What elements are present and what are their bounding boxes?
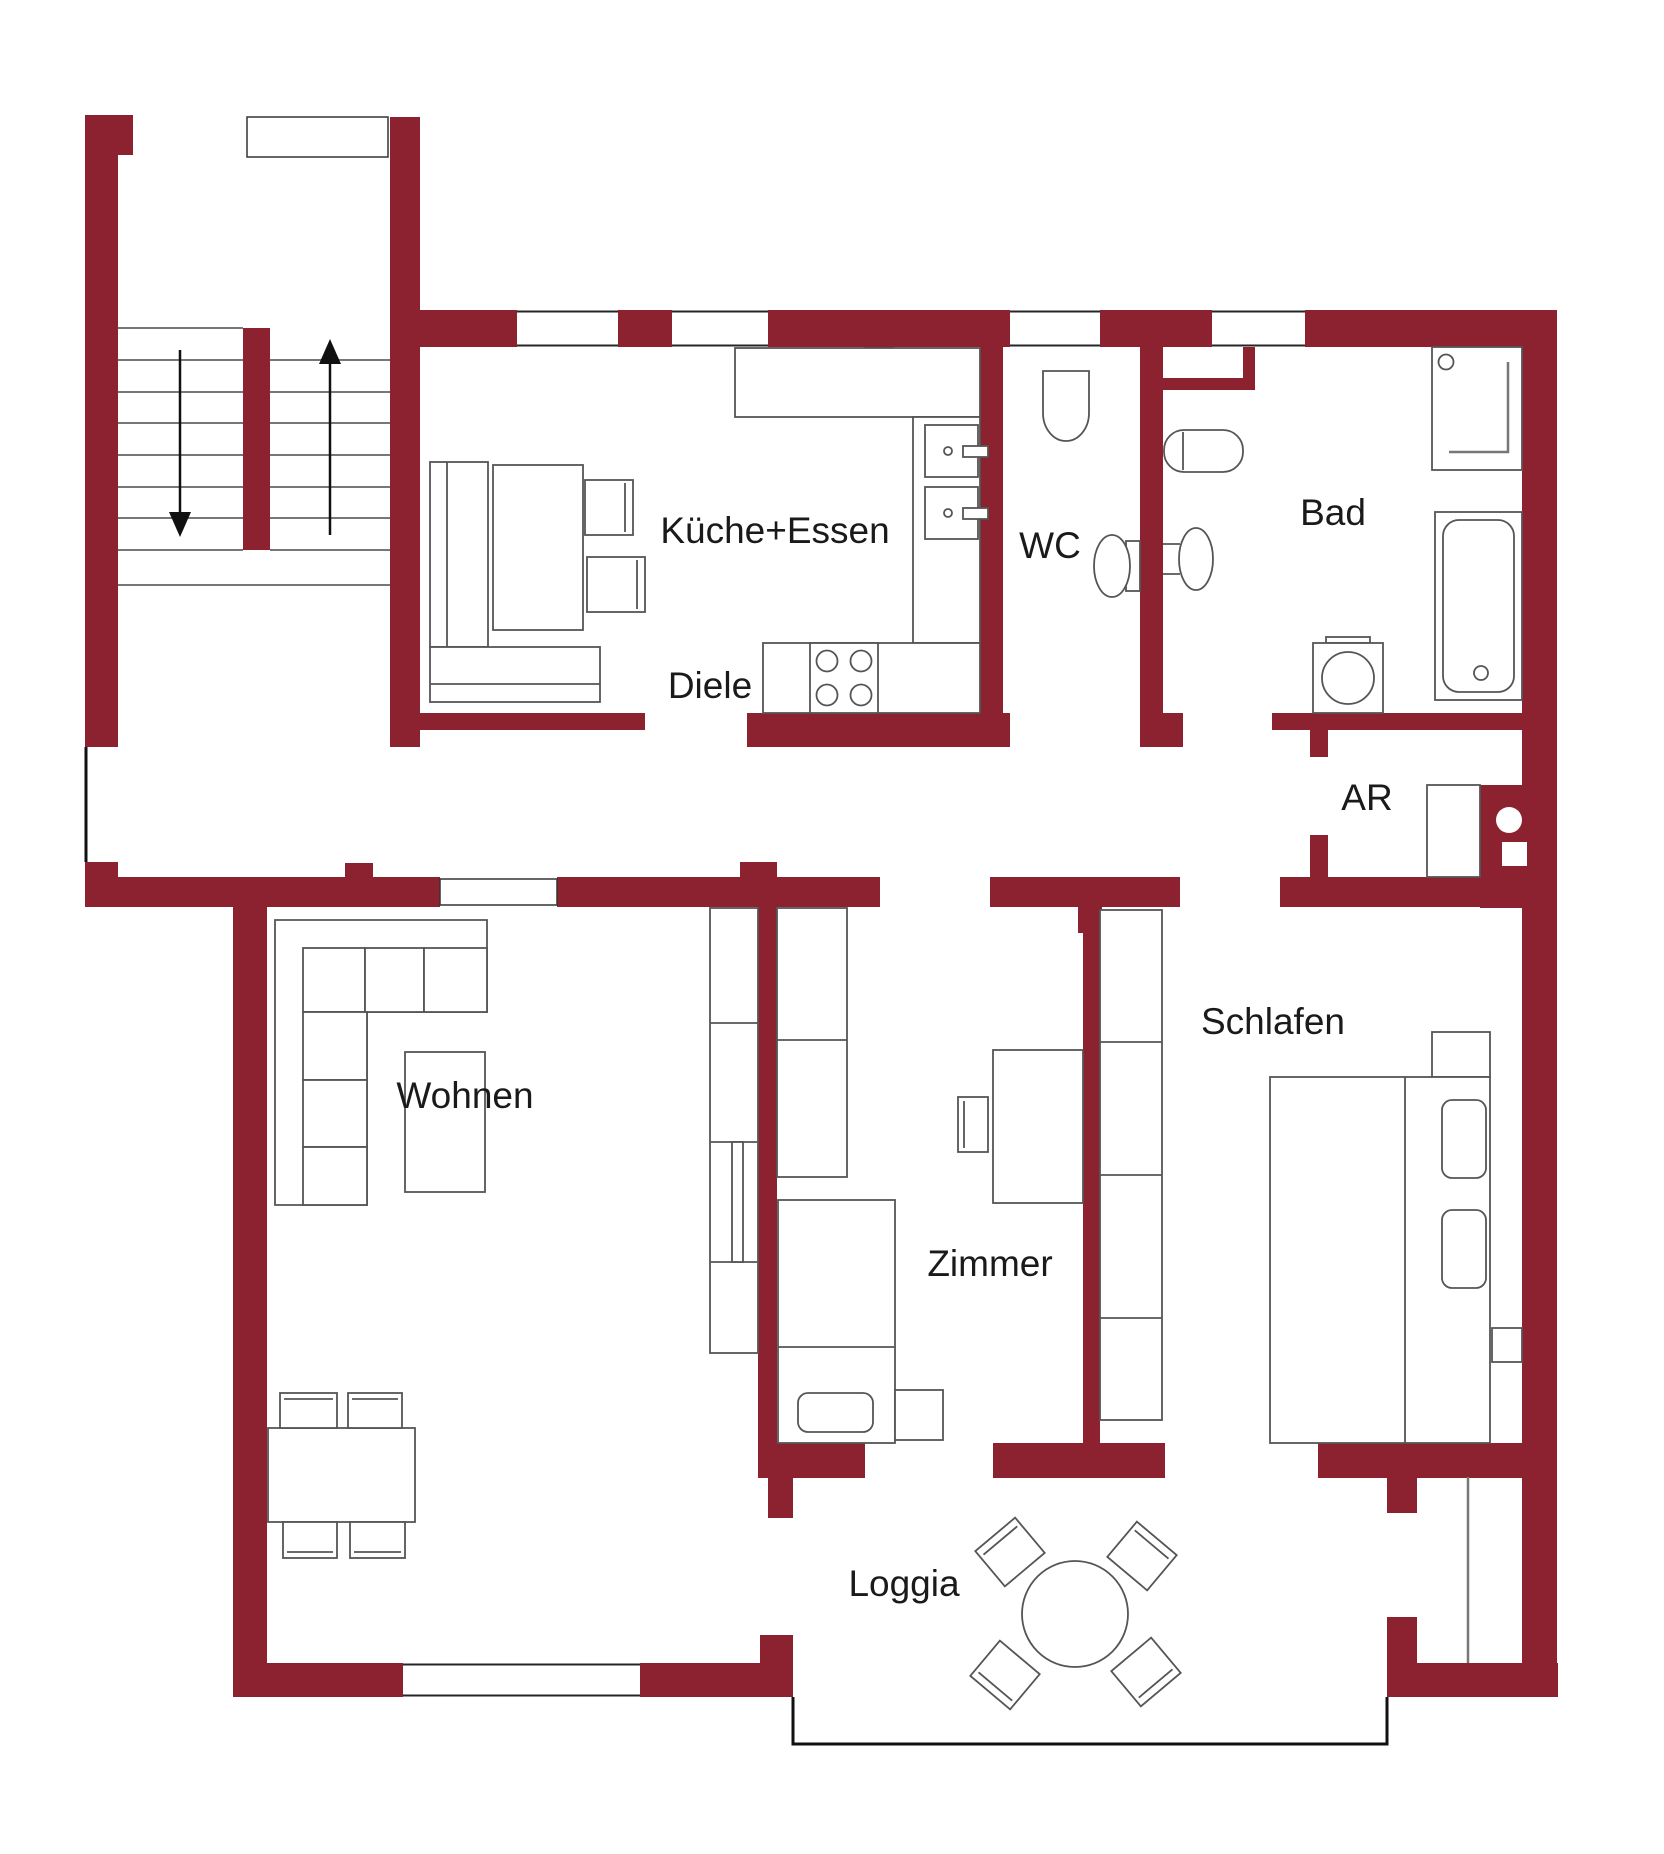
wall-segment xyxy=(760,1635,793,1697)
ar-cabinet xyxy=(1427,785,1480,877)
sofa-cushion xyxy=(303,1080,367,1147)
wall-segment xyxy=(85,877,440,907)
wc-sink xyxy=(1043,371,1089,441)
bad-toilet xyxy=(1164,430,1243,472)
room-label-diele: Diele xyxy=(668,665,752,706)
wall-segment xyxy=(1140,347,1163,713)
wall-segment xyxy=(1100,310,1212,347)
floor-plan: Küche+EssenWCBadDieleARWohnenZimmerSchla… xyxy=(0,0,1664,1854)
window xyxy=(403,1663,640,1697)
room-label-schlafen: Schlafen xyxy=(1201,1001,1345,1042)
sink-faucet xyxy=(963,508,988,519)
loggia-edge-line xyxy=(793,1697,1387,1744)
sink-drain xyxy=(944,447,952,455)
room-label-zimmer: Zimmer xyxy=(927,1243,1052,1284)
loggia-chair xyxy=(975,1518,1044,1587)
loggia-chair xyxy=(1107,1522,1176,1591)
dining-table xyxy=(268,1428,415,1522)
bad-bidet xyxy=(1179,528,1213,590)
stairwell-door-recess xyxy=(247,117,388,157)
shaft-pipe xyxy=(1496,807,1522,833)
stove-burner xyxy=(817,651,838,672)
kitchen-bench-vertical xyxy=(430,462,488,647)
wall-segment xyxy=(1387,1617,1417,1663)
wall-segment xyxy=(1305,310,1557,347)
wall-segment xyxy=(740,862,777,877)
stove-burner xyxy=(851,685,872,706)
kitchen-bench-horizontal xyxy=(430,647,600,702)
wall-segment xyxy=(758,877,777,1478)
wall-segment xyxy=(1387,1663,1558,1697)
room-label-kueche: Küche+Essen xyxy=(660,510,889,551)
shelf-inner xyxy=(732,1142,743,1262)
wall-segment xyxy=(420,713,645,730)
window xyxy=(1010,310,1100,347)
room-label-wohnen: Wohnen xyxy=(396,1075,533,1116)
room-label-ar: AR xyxy=(1341,777,1392,818)
coffee-table xyxy=(405,1052,485,1192)
wall-segment xyxy=(85,115,118,747)
sofa-cushion xyxy=(303,1147,367,1205)
wall-segment xyxy=(1140,713,1183,747)
wall-segment xyxy=(85,862,118,877)
schlafen-pillow xyxy=(1442,1100,1486,1178)
stove-burner xyxy=(851,651,872,672)
schlafen-wardrobe xyxy=(1100,910,1162,1420)
sofa-cushion xyxy=(365,948,424,1012)
wall-segment xyxy=(390,117,420,747)
schlafen-pillow xyxy=(1442,1210,1486,1288)
wall-segment xyxy=(747,713,1010,747)
floor-plan-canvas: Küche+EssenWCBadDieleARWohnenZimmerSchla… xyxy=(0,0,1664,1854)
kitchen-counter-top xyxy=(735,348,980,417)
zimmer-desk xyxy=(993,1050,1083,1203)
sink-faucet xyxy=(963,446,988,457)
wall-segment xyxy=(980,347,1003,713)
schlafen-nightstand xyxy=(1432,1032,1490,1077)
zimmer-pillow xyxy=(798,1393,873,1432)
kitchen-table xyxy=(493,465,583,630)
wall-segment xyxy=(118,115,133,155)
wall-segment xyxy=(758,1443,865,1478)
washing-machine-drum xyxy=(1322,652,1374,704)
wall-segment xyxy=(1522,347,1557,1697)
wohnen-door-opening xyxy=(440,879,557,905)
room-label-wc: WC xyxy=(1019,525,1081,566)
wall-segment xyxy=(233,907,267,1697)
wall-segment xyxy=(993,1443,1165,1478)
shower-head xyxy=(1439,355,1454,370)
wall-segment xyxy=(390,310,517,347)
loggia-chair xyxy=(1111,1638,1180,1707)
window xyxy=(517,310,618,347)
zimmer-wardrobe xyxy=(777,908,847,1177)
wohnen-shelf xyxy=(710,908,758,1353)
loggia-chair xyxy=(970,1641,1039,1710)
wall-segment xyxy=(768,310,1010,347)
wall-segment xyxy=(1140,378,1255,390)
sofa-cushion xyxy=(303,948,365,1012)
desk-chair xyxy=(958,1097,988,1152)
bathtub-drain xyxy=(1474,666,1488,680)
wall-segment xyxy=(1083,877,1100,1478)
stove-burner xyxy=(817,685,838,706)
stairs-down-arrow-head xyxy=(169,512,191,537)
wall-segment xyxy=(345,863,373,877)
window xyxy=(672,310,768,347)
sofa-cushion xyxy=(303,1012,367,1080)
window xyxy=(1212,310,1305,347)
schlafen-shelf xyxy=(1492,1328,1522,1362)
washing-machine-lid xyxy=(1326,637,1370,643)
wall-segment xyxy=(557,877,880,907)
room-label-loggia: Loggia xyxy=(848,1563,960,1604)
wall-segment xyxy=(1272,713,1523,730)
wall-segment xyxy=(1310,835,1328,877)
wc-toilet xyxy=(1094,535,1130,597)
wall-segment xyxy=(1387,1477,1417,1513)
stairs-up-arrow-head xyxy=(319,339,341,364)
sink-drain xyxy=(944,509,952,517)
wall-segment xyxy=(1318,1443,1523,1478)
loggia-table xyxy=(1022,1561,1128,1667)
zimmer-nightstand xyxy=(895,1390,943,1440)
wall-segment xyxy=(233,1663,403,1697)
shaft-duct xyxy=(1502,842,1527,866)
wall-segment xyxy=(243,328,270,550)
wall-segment xyxy=(768,1478,793,1518)
room-label-bad: Bad xyxy=(1300,492,1366,533)
wall-segment xyxy=(618,310,672,347)
sofa-cushion xyxy=(424,948,487,1012)
wall-segment xyxy=(1310,730,1328,757)
